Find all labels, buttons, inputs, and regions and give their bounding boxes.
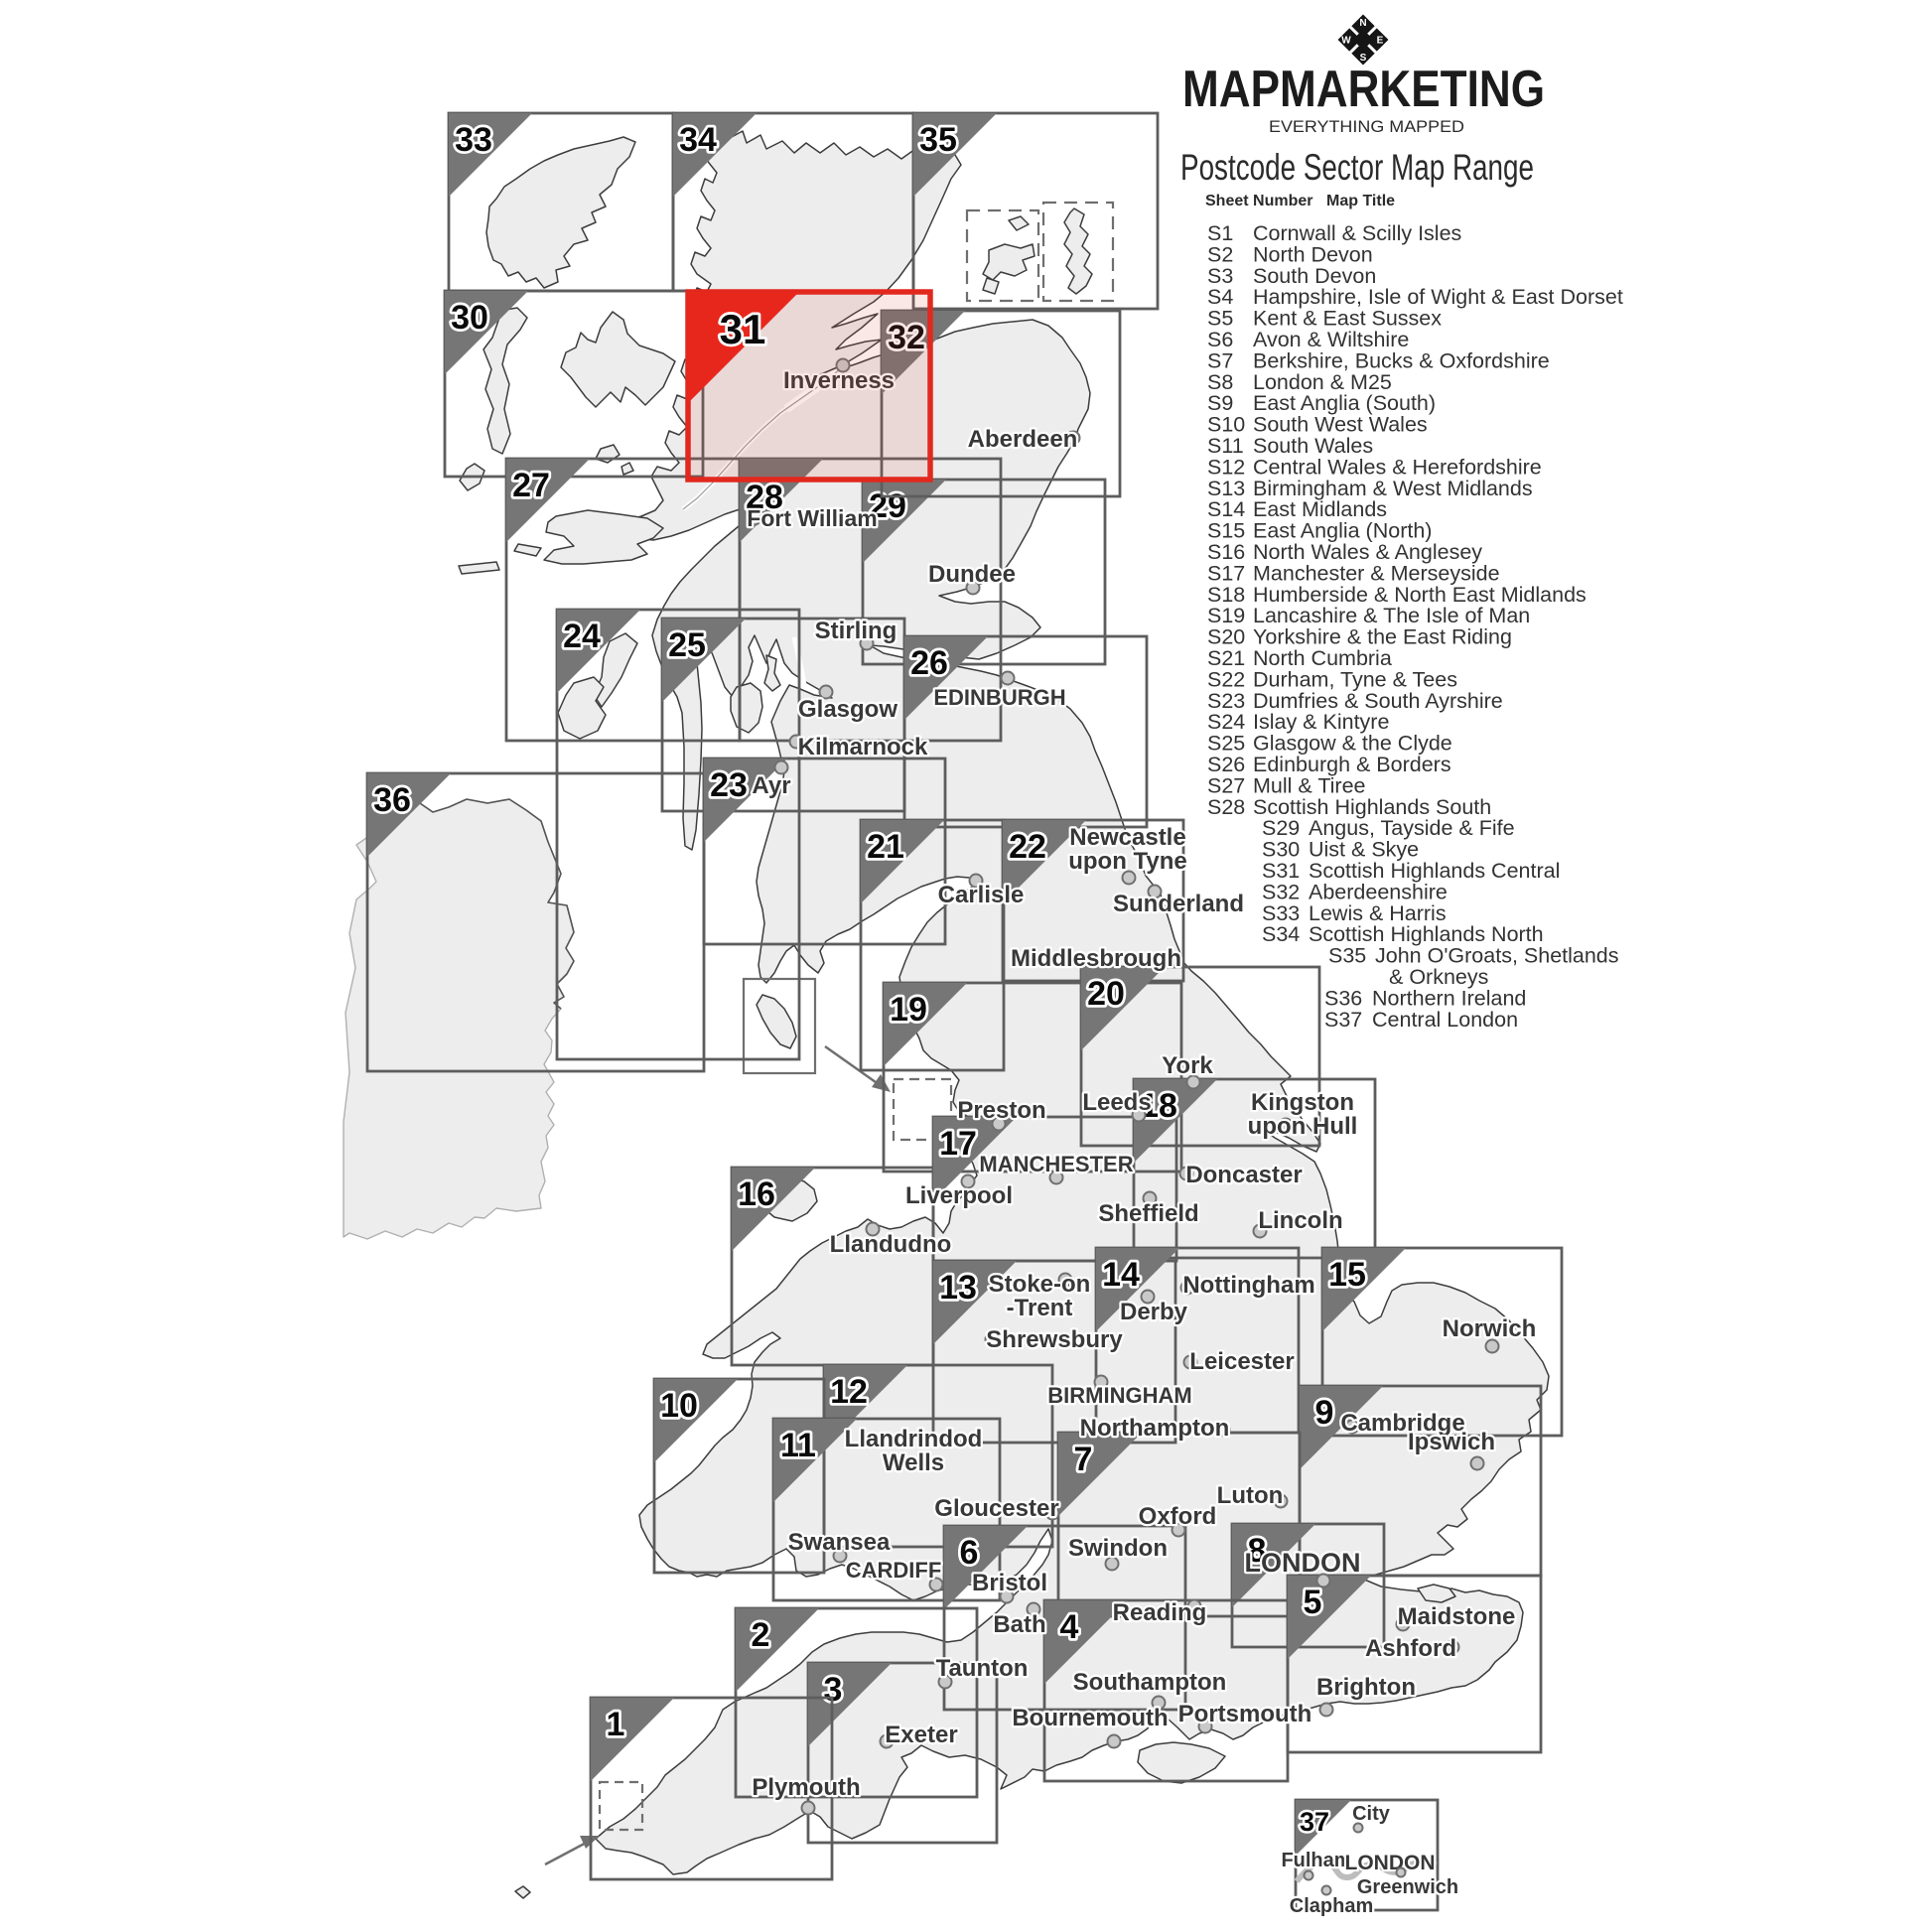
svg-text:10: 10 (660, 1387, 698, 1425)
svg-text:S9: S9 (1207, 391, 1233, 415)
svg-text:Reading: Reading (1113, 1599, 1207, 1626)
svg-text:Ashford: Ashford (1365, 1635, 1456, 1662)
svg-text:S24: S24 (1207, 710, 1245, 734)
svg-text:Manchester & Merseyside: Manchester & Merseyside (1253, 561, 1500, 585)
svg-text:Lincoln: Lincoln (1258, 1207, 1342, 1234)
svg-text:S22: S22 (1207, 667, 1245, 691)
svg-text:East Anglia (South): East Anglia (South) (1253, 391, 1436, 415)
svg-text:Aberdeenshire: Aberdeenshire (1309, 880, 1448, 903)
svg-text:Dundee: Dundee (928, 561, 1016, 588)
svg-text:S5: S5 (1207, 307, 1233, 331)
svg-text:S15: S15 (1207, 519, 1245, 543)
svg-text:Carlisle: Carlisle (938, 882, 1025, 908)
svg-text:33: 33 (455, 121, 492, 159)
svg-text:Brighton: Brighton (1316, 1674, 1416, 1701)
svg-text:13: 13 (939, 1269, 977, 1307)
svg-text:York: York (1162, 1052, 1213, 1079)
svg-text:Dumfries & South Ayrshire: Dumfries & South Ayrshire (1253, 689, 1503, 713)
svg-text:20: 20 (1087, 975, 1125, 1013)
svg-text:Sunderland: Sunderland (1113, 891, 1244, 917)
svg-text:34: 34 (679, 121, 717, 159)
svg-text:Scottish Highlands North: Scottish Highlands North (1309, 922, 1544, 946)
svg-text:Lancashire & The Isle of Man: Lancashire & The Isle of Man (1253, 604, 1530, 627)
svg-text:South Wales: South Wales (1253, 434, 1373, 458)
svg-text:Postcode Sector Map Range: Postcode Sector Map Range (1180, 147, 1534, 188)
svg-text:E: E (1377, 36, 1384, 47)
svg-text:Kingston: Kingston (1251, 1089, 1354, 1116)
svg-text:S4: S4 (1207, 285, 1233, 309)
svg-text:Bristol: Bristol (972, 1570, 1047, 1596)
svg-text:S21: S21 (1207, 646, 1245, 670)
svg-text:Angus, Tayside & Fife: Angus, Tayside & Fife (1309, 816, 1515, 840)
svg-text:S25: S25 (1207, 732, 1245, 756)
svg-text:Hampshire, Isle of Wight & Eas: Hampshire, Isle of Wight & East Dorset (1253, 285, 1623, 309)
svg-text:S27: S27 (1207, 773, 1245, 797)
svg-text:4: 4 (1060, 1608, 1079, 1646)
svg-text:Leeds: Leeds (1082, 1089, 1151, 1116)
svg-text:Llandrindod: Llandrindod (845, 1426, 983, 1452)
svg-text:MAPMARKETING: MAPMARKETING (1182, 61, 1545, 118)
svg-text:S17: S17 (1207, 561, 1245, 585)
svg-text:& Orkneys: & Orkneys (1389, 965, 1488, 989)
svg-text:S32: S32 (1262, 880, 1300, 903)
svg-text:S37: S37 (1324, 1008, 1362, 1032)
svg-text:upon Tyne: upon Tyne (1068, 848, 1187, 875)
svg-text:Liverpool: Liverpool (905, 1182, 1013, 1209)
svg-text:17: 17 (939, 1125, 977, 1163)
svg-text:Northampton: Northampton (1080, 1415, 1230, 1442)
svg-text:Edinburgh & Borders: Edinburgh & Borders (1253, 753, 1451, 776)
svg-text:Fulham: Fulham (1281, 1850, 1351, 1871)
svg-text:Fort William: Fort William (747, 505, 877, 531)
svg-text:Wells: Wells (883, 1449, 944, 1476)
svg-text:Clapham: Clapham (1290, 1895, 1373, 1917)
svg-text:LONDON: LONDON (1345, 1852, 1436, 1874)
svg-text:EVERYTHING MAPPED: EVERYTHING MAPPED (1269, 117, 1464, 136)
svg-text:S19: S19 (1207, 604, 1245, 627)
svg-text:Plymouth: Plymouth (752, 1774, 860, 1801)
svg-text:Map Title: Map Title (1326, 193, 1395, 209)
svg-text:LONDON: LONDON (1245, 1548, 1361, 1578)
svg-text:-Trent: -Trent (1007, 1295, 1073, 1321)
svg-text:S14: S14 (1207, 497, 1245, 521)
svg-text:Swindon: Swindon (1068, 1535, 1168, 1562)
svg-text:26: 26 (910, 644, 948, 682)
svg-text:1: 1 (607, 1706, 625, 1743)
svg-text:S13: S13 (1207, 477, 1245, 500)
svg-text:12: 12 (830, 1373, 868, 1411)
svg-text:S35: S35 (1328, 944, 1366, 968)
svg-text:S10: S10 (1207, 413, 1245, 437)
svg-text:Sheet Number: Sheet Number (1205, 193, 1312, 209)
svg-text:Aberdeen: Aberdeen (968, 426, 1078, 453)
svg-text:11: 11 (780, 1427, 816, 1464)
svg-text:Ipswich: Ipswich (1408, 1429, 1495, 1455)
svg-text:Scottish Highlands South: Scottish Highlands South (1253, 795, 1491, 819)
svg-text:S33: S33 (1262, 901, 1300, 925)
svg-text:North Devon: North Devon (1253, 242, 1373, 266)
svg-text:Doncaster: Doncaster (1185, 1162, 1302, 1188)
svg-text:Maidstone: Maidstone (1398, 1603, 1516, 1630)
svg-text:N: N (1359, 18, 1366, 29)
svg-text:37: 37 (1300, 1807, 1329, 1837)
svg-text:South West Wales: South West Wales (1253, 413, 1428, 437)
svg-text:Derby: Derby (1120, 1299, 1188, 1325)
svg-text:Kilmarnock: Kilmarnock (798, 734, 928, 760)
svg-text:upon Hull: upon Hull (1248, 1113, 1358, 1140)
svg-text:East Midlands: East Midlands (1253, 497, 1387, 521)
svg-text:S23: S23 (1207, 689, 1245, 713)
svg-text:Ayr: Ayr (752, 772, 790, 799)
svg-text:Lewis & Harris: Lewis & Harris (1309, 901, 1447, 925)
svg-text:S34: S34 (1262, 922, 1300, 946)
svg-text:Cornwall & Scilly Isles: Cornwall & Scilly Isles (1253, 221, 1461, 245)
svg-text:19: 19 (890, 991, 927, 1029)
svg-text:14: 14 (1102, 1256, 1140, 1294)
svg-text:Middlesbrough: Middlesbrough (1011, 945, 1181, 972)
svg-text:S30: S30 (1262, 838, 1300, 862)
svg-text:36: 36 (373, 781, 411, 819)
svg-text:W: W (1341, 36, 1351, 47)
svg-text:Central Wales & Herefordshire: Central Wales & Herefordshire (1253, 455, 1542, 479)
svg-text:North Wales & Anglesey: North Wales & Anglesey (1253, 540, 1482, 564)
svg-text:S31: S31 (1262, 859, 1300, 883)
svg-text:North Cumbria: North Cumbria (1253, 646, 1392, 670)
svg-text:S18: S18 (1207, 583, 1245, 607)
svg-text:Birmingham & West Midlands: Birmingham & West Midlands (1253, 477, 1533, 500)
svg-text:7: 7 (1074, 1441, 1093, 1478)
svg-text:Oxford: Oxford (1139, 1503, 1217, 1530)
svg-text:24: 24 (563, 618, 601, 655)
svg-text:S8: S8 (1207, 370, 1233, 394)
svg-text:9: 9 (1315, 1394, 1334, 1432)
svg-text:Stirling: Stirling (815, 618, 897, 644)
svg-text:Glasgow: Glasgow (798, 696, 897, 723)
svg-text:EDINBURGH: EDINBURGH (933, 685, 1065, 710)
svg-text:Taunton: Taunton (936, 1655, 1029, 1682)
svg-text:S1: S1 (1207, 221, 1233, 245)
svg-text:S3: S3 (1207, 264, 1233, 288)
svg-text:Glasgow & the Clyde: Glasgow & the Clyde (1253, 732, 1452, 756)
svg-text:South Devon: South Devon (1253, 264, 1376, 288)
svg-text:Kent & East Sussex: Kent & East Sussex (1253, 307, 1442, 331)
svg-text:Berkshire, Bucks & Oxfordshire: Berkshire, Bucks & Oxfordshire (1253, 348, 1550, 372)
svg-text:Durham, Tyne & Tees: Durham, Tyne & Tees (1253, 667, 1457, 691)
svg-text:27: 27 (512, 467, 550, 504)
svg-text:S36: S36 (1324, 986, 1362, 1010)
svg-text:S28: S28 (1207, 795, 1245, 819)
svg-text:Central London: Central London (1372, 1008, 1518, 1032)
svg-text:S26: S26 (1207, 753, 1245, 776)
svg-text:Newcastle: Newcastle (1069, 824, 1185, 851)
svg-text:MANCHESTER: MANCHESTER (979, 1152, 1133, 1176)
svg-text:John O'Groats, Shetlands: John O'Groats, Shetlands (1375, 944, 1619, 968)
svg-text:Exeter: Exeter (885, 1722, 957, 1748)
svg-text:Preston: Preston (957, 1097, 1045, 1124)
svg-text:Leicester: Leicester (1189, 1348, 1294, 1375)
svg-text:23: 23 (710, 766, 748, 804)
svg-text:5: 5 (1304, 1584, 1322, 1621)
svg-text:Sheffield: Sheffield (1098, 1200, 1198, 1227)
svg-text:Swansea: Swansea (788, 1529, 891, 1556)
svg-text:Nottingham: Nottingham (1182, 1272, 1314, 1299)
svg-text:S20: S20 (1207, 625, 1245, 649)
svg-text:Avon & Wiltshire: Avon & Wiltshire (1253, 328, 1409, 351)
svg-text:Yorkshire & the East Riding: Yorkshire & the East Riding (1253, 625, 1512, 649)
svg-text:Bath: Bath (993, 1611, 1045, 1638)
svg-text:S29: S29 (1262, 816, 1300, 840)
svg-text:S7: S7 (1207, 348, 1233, 372)
svg-text:Portsmouth: Portsmouth (1178, 1701, 1312, 1727)
svg-text:Bournemouth: Bournemouth (1012, 1705, 1168, 1731)
svg-text:Luton: Luton (1217, 1482, 1284, 1509)
svg-text:Shrewsbury: Shrewsbury (986, 1326, 1123, 1353)
svg-text:Gloucester: Gloucester (934, 1495, 1058, 1522)
svg-text:East Anglia (North): East Anglia (North) (1253, 519, 1432, 543)
svg-text:16: 16 (738, 1175, 775, 1213)
svg-text:Scottish Highlands Central: Scottish Highlands Central (1309, 859, 1560, 883)
svg-text:S2: S2 (1207, 242, 1233, 266)
svg-text:2: 2 (752, 1616, 770, 1654)
svg-text:35: 35 (919, 121, 957, 159)
svg-text:30: 30 (451, 299, 488, 337)
svg-text:S11: S11 (1207, 434, 1244, 458)
svg-text:S6: S6 (1207, 328, 1233, 351)
svg-text:25: 25 (668, 626, 706, 664)
svg-text:Humberside & North East Midlan: Humberside & North East Midlands (1253, 583, 1587, 607)
svg-text:CARDIFF: CARDIFF (846, 1558, 942, 1583)
svg-text:31: 31 (720, 306, 766, 352)
svg-text:Norwich: Norwich (1443, 1315, 1537, 1342)
svg-text:21: 21 (867, 828, 904, 866)
svg-text:Uist & Skye: Uist & Skye (1309, 838, 1419, 862)
svg-text:BIRMINGHAM: BIRMINGHAM (1047, 1383, 1191, 1408)
svg-text:S12: S12 (1207, 455, 1245, 479)
svg-text:6: 6 (960, 1534, 979, 1572)
svg-text:Islay & Kintyre: Islay & Kintyre (1253, 710, 1389, 734)
svg-text:City: City (1352, 1803, 1391, 1825)
svg-text:S16: S16 (1207, 540, 1245, 564)
svg-text:Stoke-on: Stoke-on (989, 1271, 1091, 1298)
svg-text:London & M25: London & M25 (1253, 370, 1392, 394)
svg-text:Northern Ireland: Northern Ireland (1372, 986, 1526, 1010)
svg-text:Southampton: Southampton (1073, 1669, 1227, 1696)
svg-text:Llandudno: Llandudno (830, 1231, 952, 1258)
svg-text:Mull & Tiree: Mull & Tiree (1253, 773, 1366, 797)
svg-text:15: 15 (1328, 1256, 1366, 1294)
svg-text:22: 22 (1009, 828, 1046, 866)
